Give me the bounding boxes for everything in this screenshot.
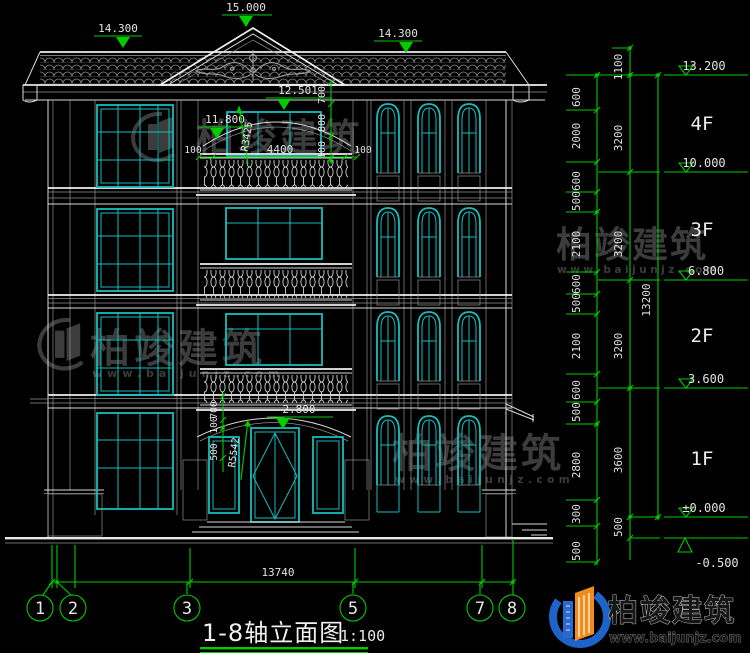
offset-right: 100: [354, 145, 371, 156]
floor-label-3f: 3F: [691, 219, 714, 241]
offset-left: 100: [184, 145, 201, 156]
floor-dim: 3200: [612, 333, 625, 360]
detail-dim: 500: [570, 541, 583, 561]
floor-dim: 500: [612, 517, 625, 537]
elevation-label: 3.600: [688, 372, 724, 386]
detail-dim: 500: [570, 191, 583, 211]
elevation-label: 6.800: [688, 264, 724, 278]
axis-bubble-3: 3: [182, 599, 192, 619]
axis-bubble-8: 8: [507, 599, 517, 619]
floor-dim: 3200: [612, 231, 625, 258]
eave-right-elevation: 14.300: [378, 27, 418, 40]
logo-company-name: 柏竣建筑: [608, 594, 736, 629]
title-underline: [200, 647, 368, 649]
overall-height-dim: 13200: [640, 283, 653, 316]
detail-dim: 2100: [570, 333, 583, 360]
eave-left-elevation: 14.300: [98, 22, 138, 35]
entry-chain-500: 500: [209, 443, 220, 460]
entry-chain-700: 700: [209, 401, 220, 418]
bottom-annotation: 13740 1 2 3 5 7 8 1-8轴立面图 1:100: [27, 540, 525, 653]
axis-bubble-7: 7: [475, 599, 485, 619]
entrance: [183, 418, 369, 532]
floor-label-1f: 1F: [691, 448, 714, 470]
drawing-scale: 1:100: [340, 627, 385, 645]
floor-label-4f: 4F: [691, 113, 714, 135]
axis-bubble-5: 5: [348, 599, 358, 619]
chain-4f-100: 100: [317, 141, 328, 159]
top-dimensions: 15.000 14.300 14.300: [94, 1, 422, 53]
detail-dim: 600: [570, 380, 583, 400]
floor-dim: 3200: [612, 125, 625, 152]
detail-dim: 300: [570, 504, 583, 524]
detail-dim: 2000: [570, 123, 583, 150]
floor-dim: 3600: [612, 447, 625, 474]
elevation-drawing: 柏竣建筑 柏竣建筑 www.baijunjz.com 柏竣建筑 www.baij…: [0, 0, 750, 653]
entry-chain-100: 100: [209, 416, 220, 433]
balcony-width: 4400: [267, 143, 294, 156]
detail-dim: 600: [570, 274, 583, 294]
detail-dim: 2100: [570, 231, 583, 258]
detail-dim: 500: [570, 293, 583, 313]
elevation-label: 13.200: [682, 59, 725, 73]
axis-bubble-2: 2: [68, 599, 78, 619]
elevation-label: 10.000: [682, 156, 725, 170]
axis-bubble-1: 1: [35, 599, 45, 619]
elevation-label: -0.500: [695, 556, 738, 570]
elevation-label: ±0.000: [682, 501, 725, 515]
stair-tower-windows: [97, 105, 173, 509]
cad-elevation-screenshot: 柏竣建筑 柏竣建筑 www.baijunjz.com 柏竣建筑 www.baij…: [0, 0, 750, 653]
overall-width-dim: 13740: [261, 566, 294, 579]
chain-4f-800: 800: [317, 114, 328, 132]
balcony-elevation: 11.800: [205, 113, 245, 126]
detail-dim: 600: [570, 171, 583, 191]
arc-top-elevation: 12.501: [278, 84, 318, 97]
axis-bubbles: 1 2 3 5 7 8: [27, 595, 525, 621]
detail-dim: 2800: [570, 452, 583, 479]
floor-label-2f: 2F: [691, 325, 714, 347]
detail-dim: 600: [570, 87, 583, 107]
floor-dim: 1100: [612, 54, 625, 81]
detail-dim: 500: [570, 402, 583, 422]
watermark-row-lower-right: 柏竣建筑 www.baijunjz.com: [392, 431, 574, 486]
site-logo: 柏竣建筑 www.baijunjz.com: [542, 579, 741, 653]
ridge-elevation: 15.000: [226, 1, 266, 14]
logo-url: www.baijunjz.com: [609, 631, 742, 646]
chain-4f-700: 700: [317, 86, 328, 104]
entry-elevation: 2.800: [282, 403, 315, 416]
drawing-title: 1-8轴立面图: [202, 619, 344, 647]
